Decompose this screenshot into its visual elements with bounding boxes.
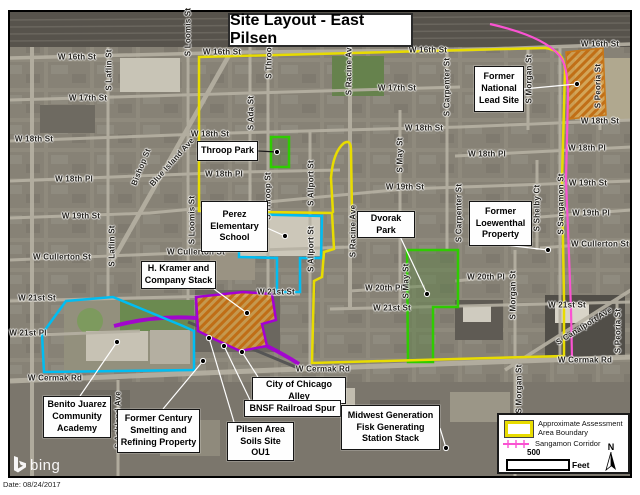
callout-pilsen-area-soils-ou1-marker-dot (206, 335, 211, 340)
callout-bnsf-railroad-spur-marker-dot (221, 343, 226, 348)
date-label: Date: 08/24/2017 (3, 480, 61, 489)
scale-bar (506, 459, 570, 471)
bing-wordmark: bing (30, 457, 60, 474)
national-lead-site-area (566, 48, 606, 119)
callout-midwest-generation-fisk-marker-dot (443, 445, 448, 450)
callout-former-national-lead-site-marker-dot (574, 81, 579, 86)
scale-unit: Feet (572, 460, 589, 470)
map-title-text: Site Layout - East Pilsen (230, 12, 411, 48)
callout-benito-juarez-academy-marker-dot (114, 339, 119, 344)
scale-value: 500 (527, 448, 540, 457)
legend-label: Approximate Assessment Area Boundary (538, 420, 632, 437)
bing-logo: bing (13, 456, 60, 474)
magenta-line-swatch (502, 439, 530, 449)
north-arrow: N (602, 442, 620, 474)
map-content (9, 11, 631, 477)
legend-item-assessment-boundary: Approximate Assessment Area Boundary (505, 420, 632, 437)
callout-dvorak-park-marker-dot (424, 291, 429, 296)
legend: Approximate Assessment Area Boundary San… (497, 413, 630, 474)
north-arrow-icon (604, 452, 618, 472)
bing-icon (13, 456, 27, 474)
callout-city-of-chicago-alley-marker-dot (239, 349, 244, 354)
north-label: N (602, 442, 620, 452)
yellow-boundary-swatch (505, 421, 533, 437)
callout-perez-elementary-school-marker-dot (282, 233, 287, 238)
map-title: Site Layout - East Pilsen (228, 13, 413, 47)
callout-former-century-smelting-marker-dot (200, 358, 205, 363)
callout-throop-park-marker-dot (274, 149, 279, 154)
map-figure: W 16th StW 16th StW 16th StW 16th StW 17… (0, 0, 640, 495)
callout-h-kramer-company-stack-marker-dot (244, 310, 249, 315)
callout-former-loewenthal-property-marker-dot (545, 247, 550, 252)
